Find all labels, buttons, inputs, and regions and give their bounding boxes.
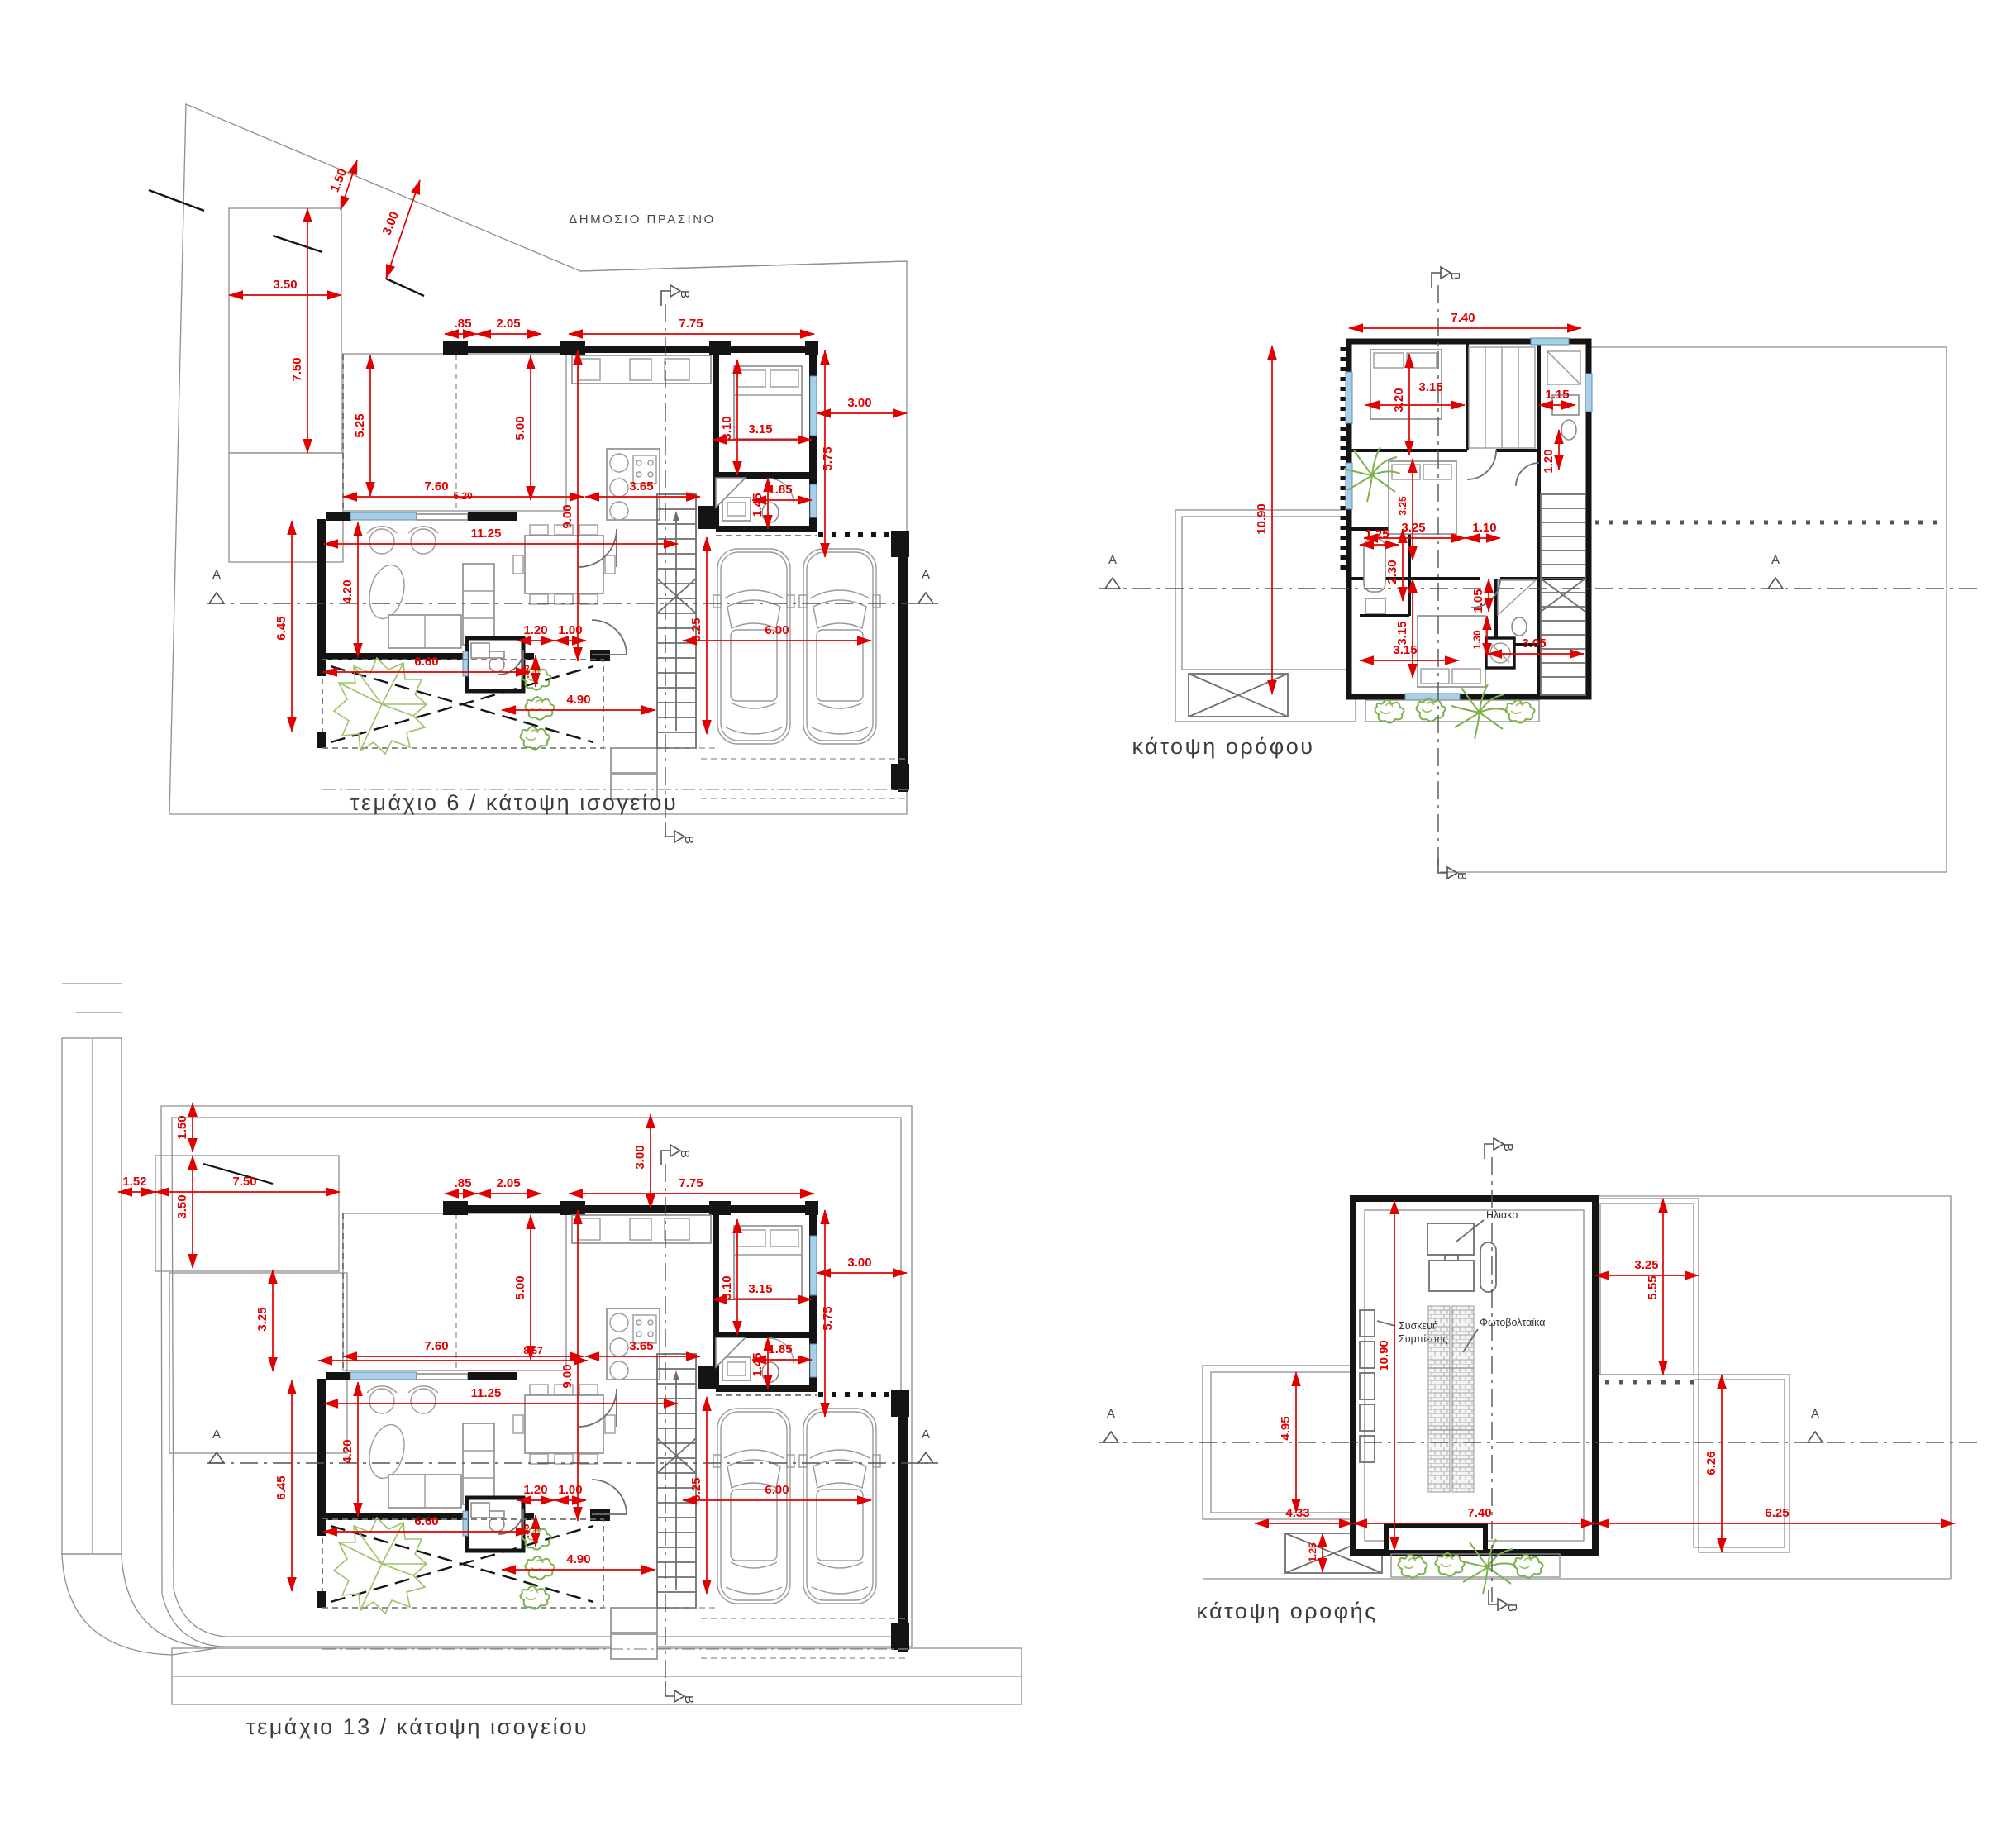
dimension-label: 3.65 [629,1339,653,1353]
dimension-label: 3.25 [255,1307,269,1331]
dimension-label: 5.75 [821,446,835,470]
dimension-label: 4.90 [566,693,590,707]
dimension-label: 3.10 [720,1275,734,1299]
section-letter: A [212,1428,221,1442]
dimension-label: 11.25 [471,1386,502,1400]
plan6-title: τεμάχιο 6 / κάτοψη ισογείου [350,790,678,815]
annotation-label: Φωτοβολταϊκά [1480,1317,1546,1328]
plan13-title: τεμάχιο 13 / κάτοψη ισογείου [246,1714,589,1739]
section-letter: A [922,1428,930,1442]
dimension-label: 2.05 [496,1176,520,1190]
dimension-label: 3.25 [1634,1258,1658,1272]
section-letter: A [1107,1407,1115,1421]
dimension-label: 5.75 [821,1306,835,1330]
roof-title: κάτοψη οροφής [1196,1599,1377,1623]
dimension-label: 1.45 [751,1352,765,1376]
dimension-label: 7.60 [424,1339,448,1353]
dimension-label: 6.45 [274,1475,288,1499]
section-letter: B [1448,272,1462,280]
section-flag [665,1681,684,1702]
dimension-label: 3.00 [847,396,871,410]
dimension-label: 1.30 [1471,630,1483,650]
section-flag [661,1145,680,1165]
dimension-label: 4.33 [1285,1506,1309,1520]
dimension-label: 7.75 [679,317,703,331]
upper-terrace [1182,517,1349,670]
dimension-label: 3.25 [1401,521,1425,535]
section-letter: A [1771,553,1780,567]
section-flag [1438,858,1457,879]
dimension-label: 3.00 [633,1145,647,1169]
dimension-label: 1.20 [1542,449,1556,473]
annotation-label: Ηλιακο [1486,1209,1518,1221]
dimension-label: 1.20 [523,1483,547,1497]
dimension-label: 3.10 [720,416,734,440]
section-letter: B [682,836,696,844]
drawing-sheet: ΔΗΜΟΣΙΟ ΠΡΑΣΙΝΟ 1.503.003.507.50.852.057… [0,0,2016,1840]
dimension-label: 10.90 [1255,503,1269,535]
drawing-canvas: ΔΗΜΟΣΙΟ ΠΡΑΣΙΝΟ 1.503.003.507.50.852.057… [0,0,2016,1840]
dimension-label: 1.00 [558,1483,582,1497]
section-arrow [918,1452,933,1463]
dimension-label: 1.20 [523,623,547,637]
dimension-label: 7.40 [1467,1506,1491,1520]
dimension-label: 3.15 [1395,621,1409,645]
section-arrow [1103,1432,1118,1442]
dimension-label: 4.95 [1279,1416,1293,1440]
dimension-label: 2.05 [496,317,520,331]
dimension-label: 3.20 [1392,388,1406,412]
dimension-label: .85 [455,317,472,331]
dimension-label: 1.50 [175,1115,189,1139]
section-arrow [1105,578,1120,589]
dimension-label: 4.90 [566,1552,590,1566]
dimension-label: 5.00 [513,1275,527,1299]
dimension-label: 3.25 [1397,496,1408,516]
dimension-label: 6.26 [1704,1451,1718,1475]
section-arrow [1808,1432,1823,1442]
dimension-label: 1.52 [122,1175,146,1189]
section-letter: A [1108,553,1117,567]
dimension-label: 4.20 [341,579,355,603]
dimension-label: 5.00 [513,416,527,440]
dimension-label: 6.00 [765,1483,789,1497]
dimension-label: 3.05 [1522,636,1546,651]
section-letter: A [922,568,930,582]
dimension-label: 1.25 [1307,1542,1318,1562]
dimension-label: 1.85 [768,1342,792,1356]
dimension-label: 1.05 [1471,589,1485,613]
dimension-label: 1.85 [768,483,792,497]
dimension-label: 3.15 [748,1282,772,1296]
dimension-label: 1.15 [1545,388,1569,402]
dimension-label: 7.40 [1451,311,1475,325]
dimension-label: 6.60 [414,1514,438,1528]
dimension-label: 3.50 [273,278,297,292]
dimension-label: .95 [520,664,531,678]
dimension-label: 3.15 [748,422,772,436]
dimension-label: 5.20 [453,490,473,502]
dimension-label: 11.25 [471,527,502,541]
dimension-label: 7.75 [679,1176,703,1190]
dimension-label: 3.50 [175,1194,189,1218]
section-letter: B [1501,1143,1515,1151]
section-letter: B [682,1695,696,1704]
dimension-label: 6.25 [689,1477,703,1501]
sidewalk [62,984,1022,1704]
dimension-label: 6.00 [765,623,789,637]
dimension-label: 4.20 [341,1439,355,1463]
dimension-label: 2.30 [1385,560,1399,584]
annotation-label: Συμπίεσης [1399,1333,1447,1345]
dimension-label: 1.00 [558,623,582,637]
public-green-label: ΔΗΜΟΣΙΟ ΠΡΑΣΙΝΟ [569,212,715,226]
roof-plan: 3.255.5510.904.951.256.264.337.406.25BBA… [1099,1138,1980,1623]
bedroom-3 [1418,616,1485,687]
plan-13-ground-floor: 1.527.501.503.503.253.00.852.057.753.005… [62,984,1022,1739]
dimension-label: 1.10 [1472,521,1496,535]
dimension-label: 5.25 [353,413,367,437]
dimension-label: 10.90 [1377,1340,1391,1371]
dimension-label: 3.00 [379,210,402,237]
section-letter: B [678,1150,692,1158]
dimension-label: 3.00 [847,1256,871,1270]
dimension-label: .85 [455,1176,472,1190]
dimension-label: 7.50 [290,357,304,381]
section-arrow [209,1452,224,1463]
dimension-label: 6.60 [414,655,438,669]
dimension-label: 3.15 [1418,380,1442,394]
section-letter: B [1455,872,1469,880]
section-arrow [918,593,933,603]
upper-floor-plan: 7.403.203.151.1510.903.251.101.203.251.2… [1099,267,1980,880]
section-letter: B [1505,1604,1519,1612]
section-letter: A [212,568,221,582]
dimension-label: 5.55 [1646,1275,1660,1299]
floor-title: κάτοψη ορόφου [1132,734,1314,759]
section-arrow [1768,578,1783,589]
section-letter: A [1811,1407,1819,1421]
shaft [1486,638,1514,668]
annotation-label: Συσκευή [1399,1320,1438,1332]
dimension-label: 3.65 [629,479,653,493]
section-flag [1432,267,1451,288]
skylight-box [1189,674,1288,717]
dimension-label: 8.57 [523,1345,543,1356]
bathroom-2 [1364,539,1385,613]
plot13-boundary [161,1106,912,1647]
swimming-pool [229,208,341,453]
dimension-label: 7.50 [232,1175,256,1189]
section-flag [665,822,684,842]
dimension-label: .95 [520,1523,531,1537]
dimension-label: 9.00 [560,1364,574,1388]
dimension-label: 3.15 [1393,643,1417,657]
dimension-label: 7.60 [424,479,448,493]
dimension-label: 6.25 [1765,1506,1789,1520]
plan-6-ground-floor: ΔΗΜΟΣΙΟ ΠΡΑΣΙΝΟ 1.503.003.507.50.852.057… [149,104,938,844]
section-flag [661,285,680,306]
dimension-label: 1.45 [751,493,765,517]
plot-boundary [169,104,907,814]
section-letter: B [678,290,692,298]
plan13-dimensions: 1.527.501.503.503.253.00.852.057.753.005… [118,1103,933,1704]
dimension-label: 6.45 [274,616,288,640]
section-arrow [209,593,224,603]
dimension-label: 9.00 [560,504,574,528]
dimension-label: 6.25 [689,617,703,641]
section-flag [1485,1138,1504,1159]
dimension-label: 1.25 [1365,527,1389,541]
entry-canopy [1386,1525,1485,1552]
